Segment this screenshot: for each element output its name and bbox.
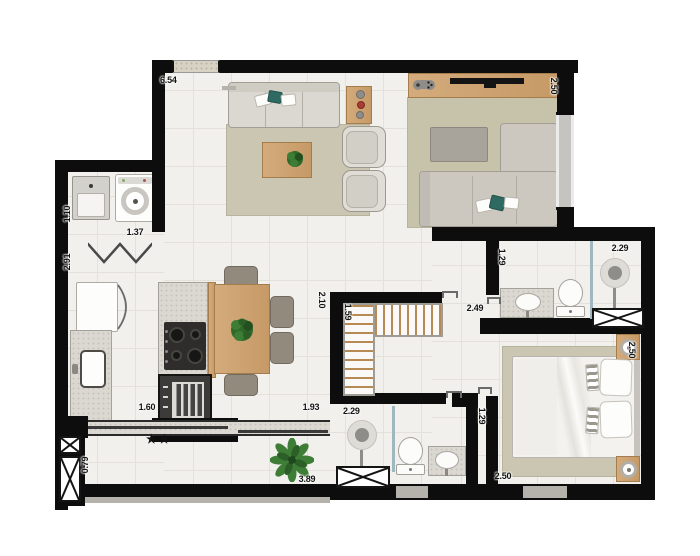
- dimension-label: 1.93: [296, 402, 326, 412]
- floor-plan: 6.54 2.50 1.10 2.91 1.37 2.10 1.59 2.49 …: [0, 0, 700, 556]
- washer-knob: [143, 179, 146, 182]
- bath2-sink: [435, 451, 459, 469]
- dimension-label: 3.89: [292, 474, 322, 484]
- dimension-label: 1.10: [62, 199, 72, 229]
- decor-item: [357, 101, 365, 109]
- bath2-threshold: [396, 486, 428, 498]
- bath2-faucet: [445, 469, 448, 476]
- bath1-sink: [515, 293, 541, 311]
- bath2-shaft-xbox: [336, 466, 390, 488]
- cooktop-knob: [165, 340, 168, 343]
- dimension-label: 1.29: [497, 242, 507, 272]
- washer-knob: [122, 179, 125, 182]
- bath1-sink-counter: [500, 288, 554, 318]
- dimension-label: 1.37: [120, 227, 150, 237]
- bath1-shaft-xbox: [592, 308, 644, 328]
- bath1-faucet: [526, 311, 529, 318]
- armchair-seat: [346, 131, 378, 164]
- oven-button: [163, 406, 168, 408]
- oven-cabinet: [158, 374, 212, 422]
- bath2-sink-counter: [428, 446, 466, 476]
- bath2-toilet-bowl: [398, 437, 423, 465]
- sofa-seat-line: [302, 92, 303, 127]
- bath1-toilet-bowl: [558, 279, 583, 307]
- sofa-pillow: [280, 93, 296, 107]
- bed-duvet: [515, 359, 563, 455]
- bedroom-window-sill: [523, 486, 567, 498]
- fridge: [76, 282, 118, 332]
- window: [556, 112, 574, 210]
- den-ottoman: [430, 127, 488, 162]
- cooktop: [164, 322, 206, 370]
- washer-drum: [121, 187, 149, 215]
- cooktop-knob: [165, 330, 168, 333]
- wall: [152, 60, 165, 232]
- dimension-label: 1.60: [132, 402, 162, 412]
- dimension-label: 1.29: [477, 401, 487, 431]
- balcony-apron: [68, 497, 330, 503]
- bath2-shower-glass: [392, 406, 395, 472]
- window: [172, 60, 220, 73]
- toilet-button: [569, 310, 572, 313]
- sliding-door-track: [238, 430, 328, 433]
- nightstand: [616, 456, 640, 482]
- balcony-stars-note: ★★: [146, 432, 172, 446]
- sofa-back: [229, 83, 339, 92]
- side-table: [346, 86, 372, 124]
- bath2-shower-head-center: [355, 428, 369, 442]
- closet-top-section: [375, 303, 443, 337]
- laundry-drain: [89, 184, 93, 188]
- burner: [190, 329, 201, 340]
- bed-cushion-striped: [585, 407, 600, 435]
- burner: [187, 348, 203, 364]
- decor-item: [356, 90, 365, 99]
- kitchen-faucet: [72, 364, 78, 374]
- wall: [641, 227, 655, 500]
- dimension-label: 2.29: [343, 406, 373, 416]
- fridge-door-arc: [117, 284, 135, 330]
- decor-item: [356, 111, 364, 119]
- dimension-label: 0.79: [80, 450, 90, 480]
- den-sofa-seat-line: [472, 176, 473, 224]
- oven-button: [163, 396, 168, 398]
- wall: [55, 160, 157, 172]
- nightstand-lamp: [620, 461, 637, 478]
- bed-headboard: [634, 356, 640, 458]
- dimension-label: 2.50: [488, 471, 518, 481]
- den-pillow: [503, 196, 519, 210]
- cooktop-knob: [165, 360, 168, 363]
- shaft-xbox: [59, 436, 81, 454]
- dimension-label: 2.29: [605, 243, 635, 253]
- armchair: [342, 126, 386, 168]
- wall: [330, 292, 343, 404]
- dimension-label: 2.10: [317, 285, 327, 315]
- game-controller-icon: [412, 76, 436, 94]
- toilet-button: [409, 468, 412, 471]
- dining-chair: [270, 332, 294, 364]
- accordion-door: [88, 238, 152, 266]
- shaft-xbox: [59, 456, 81, 502]
- bath1-shower-head-center: [608, 266, 622, 280]
- burner: [169, 327, 185, 343]
- dimension-label: 1.59: [343, 297, 353, 327]
- door-mark: [446, 391, 462, 398]
- dimension-label: 2.91: [62, 247, 72, 277]
- dimension-label: 2.50: [549, 71, 559, 101]
- dimension-label: 2.49: [460, 303, 490, 313]
- dining-chair: [270, 296, 294, 328]
- burner: [171, 350, 182, 361]
- washer-drum-center: [133, 199, 138, 204]
- tv-stand: [484, 84, 496, 88]
- coffee-table-plant: [284, 148, 306, 170]
- bath1-toilet-tank: [556, 306, 585, 317]
- washing-machine: [115, 174, 155, 222]
- bed-cushion-striped: [585, 364, 600, 392]
- kitchen-sink: [80, 350, 106, 388]
- laundry-basin: [77, 193, 105, 217]
- armchair: [342, 170, 386, 212]
- sliding-door-track: [88, 426, 228, 429]
- wall: [432, 227, 655, 241]
- laundry-tank-sink: [72, 176, 110, 220]
- dining-table-plant: [226, 314, 258, 346]
- door-mark: [478, 387, 492, 394]
- door-mark: [442, 291, 458, 298]
- dimension-label: 2.50: [627, 335, 637, 365]
- den-sofa-arm: [420, 172, 430, 226]
- window-sill: [222, 86, 236, 90]
- cooktop-knob: [165, 350, 168, 353]
- dining-chair: [224, 374, 258, 396]
- armchair-seat: [346, 175, 378, 208]
- dimension-label: 6.54: [160, 75, 190, 85]
- bed-pillow: [599, 400, 632, 438]
- oven-door: [172, 382, 204, 418]
- oven-button: [163, 386, 168, 388]
- bath2-toilet-tank: [396, 464, 425, 475]
